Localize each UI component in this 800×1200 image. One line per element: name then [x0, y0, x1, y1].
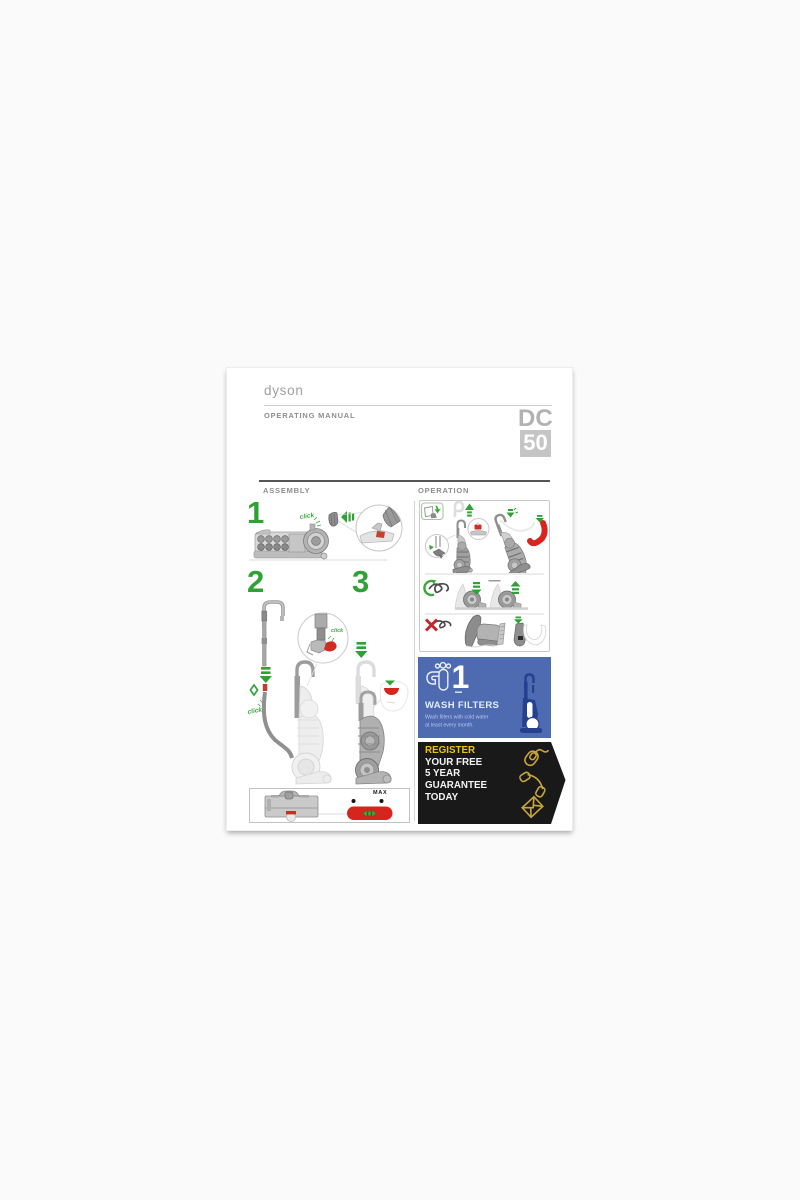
svg-text:click: click [331, 628, 344, 634]
svg-text:click: click [299, 512, 315, 521]
svg-text:click: click [247, 706, 263, 715]
svg-text:3: 3 [352, 564, 369, 599]
svg-text:1: 1 [452, 659, 470, 695]
svg-text:1: 1 [247, 495, 264, 530]
svg-text:2: 2 [247, 564, 264, 599]
